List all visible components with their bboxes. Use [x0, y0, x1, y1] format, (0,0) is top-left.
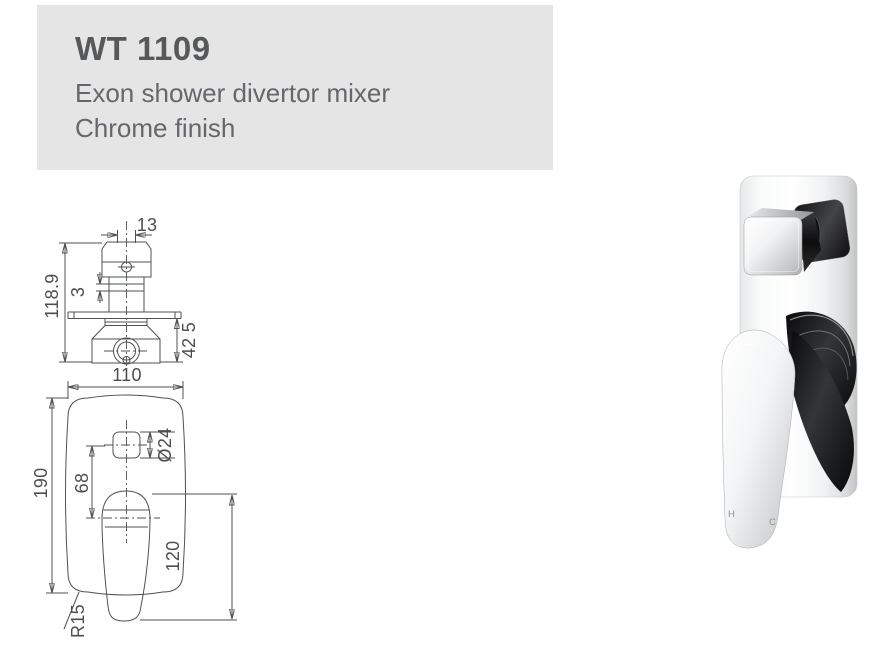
dimension-button-offset: 68: [72, 473, 92, 494]
spec-sheet-page: WT 1109 Exon shower divertor mixer Chrom…: [0, 0, 883, 662]
dimension-plate-width: 110: [112, 365, 142, 385]
photo-mixer-lever: H C: [722, 312, 857, 548]
front-view-plate: 110 Ø24 68 120: [31, 365, 237, 638]
dimension-plate-gap: 3: [68, 287, 88, 297]
dimension-body-depth: 42 5: [179, 322, 199, 358]
top-view-side-elevation: 13 3 118.9 42 5: [42, 215, 199, 369]
dimension-spindle-width: 13: [137, 215, 158, 235]
hot-marking: H: [728, 509, 735, 520]
dimension-corner-radius: R15: [68, 604, 88, 638]
product-photo: H C: [700, 160, 880, 560]
cold-marking: C: [769, 517, 776, 528]
dimension-total-height: 118.9: [42, 273, 62, 318]
dimension-plate-height: 190: [31, 468, 51, 499]
dimension-handle-length: 120: [163, 541, 183, 572]
dimension-button-diameter: Ø24: [155, 428, 175, 463]
